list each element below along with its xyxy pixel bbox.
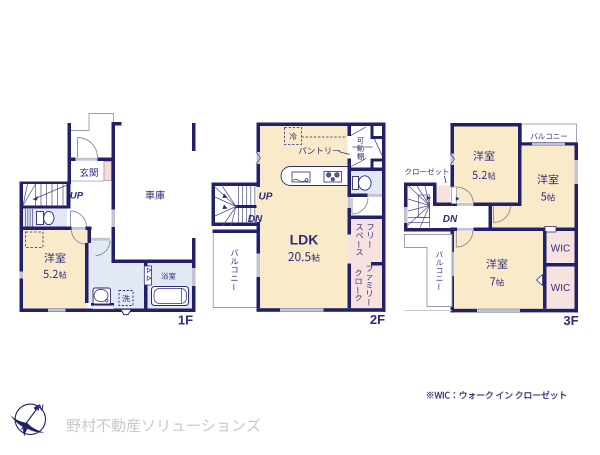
svg-text:UP: UP bbox=[70, 190, 84, 201]
svg-text:DN: DN bbox=[443, 214, 458, 225]
svg-text:N: N bbox=[38, 404, 44, 413]
svg-text:LDK: LDK bbox=[290, 232, 319, 248]
svg-text:3F: 3F bbox=[563, 313, 578, 328]
svg-text:2F: 2F bbox=[370, 312, 385, 327]
svg-text:DN: DN bbox=[248, 214, 263, 225]
svg-text:UP: UP bbox=[259, 192, 273, 203]
svg-text:1F: 1F bbox=[178, 313, 193, 328]
svg-text:WIC: WIC bbox=[551, 283, 570, 294]
svg-text:WIC: WIC bbox=[551, 244, 570, 255]
